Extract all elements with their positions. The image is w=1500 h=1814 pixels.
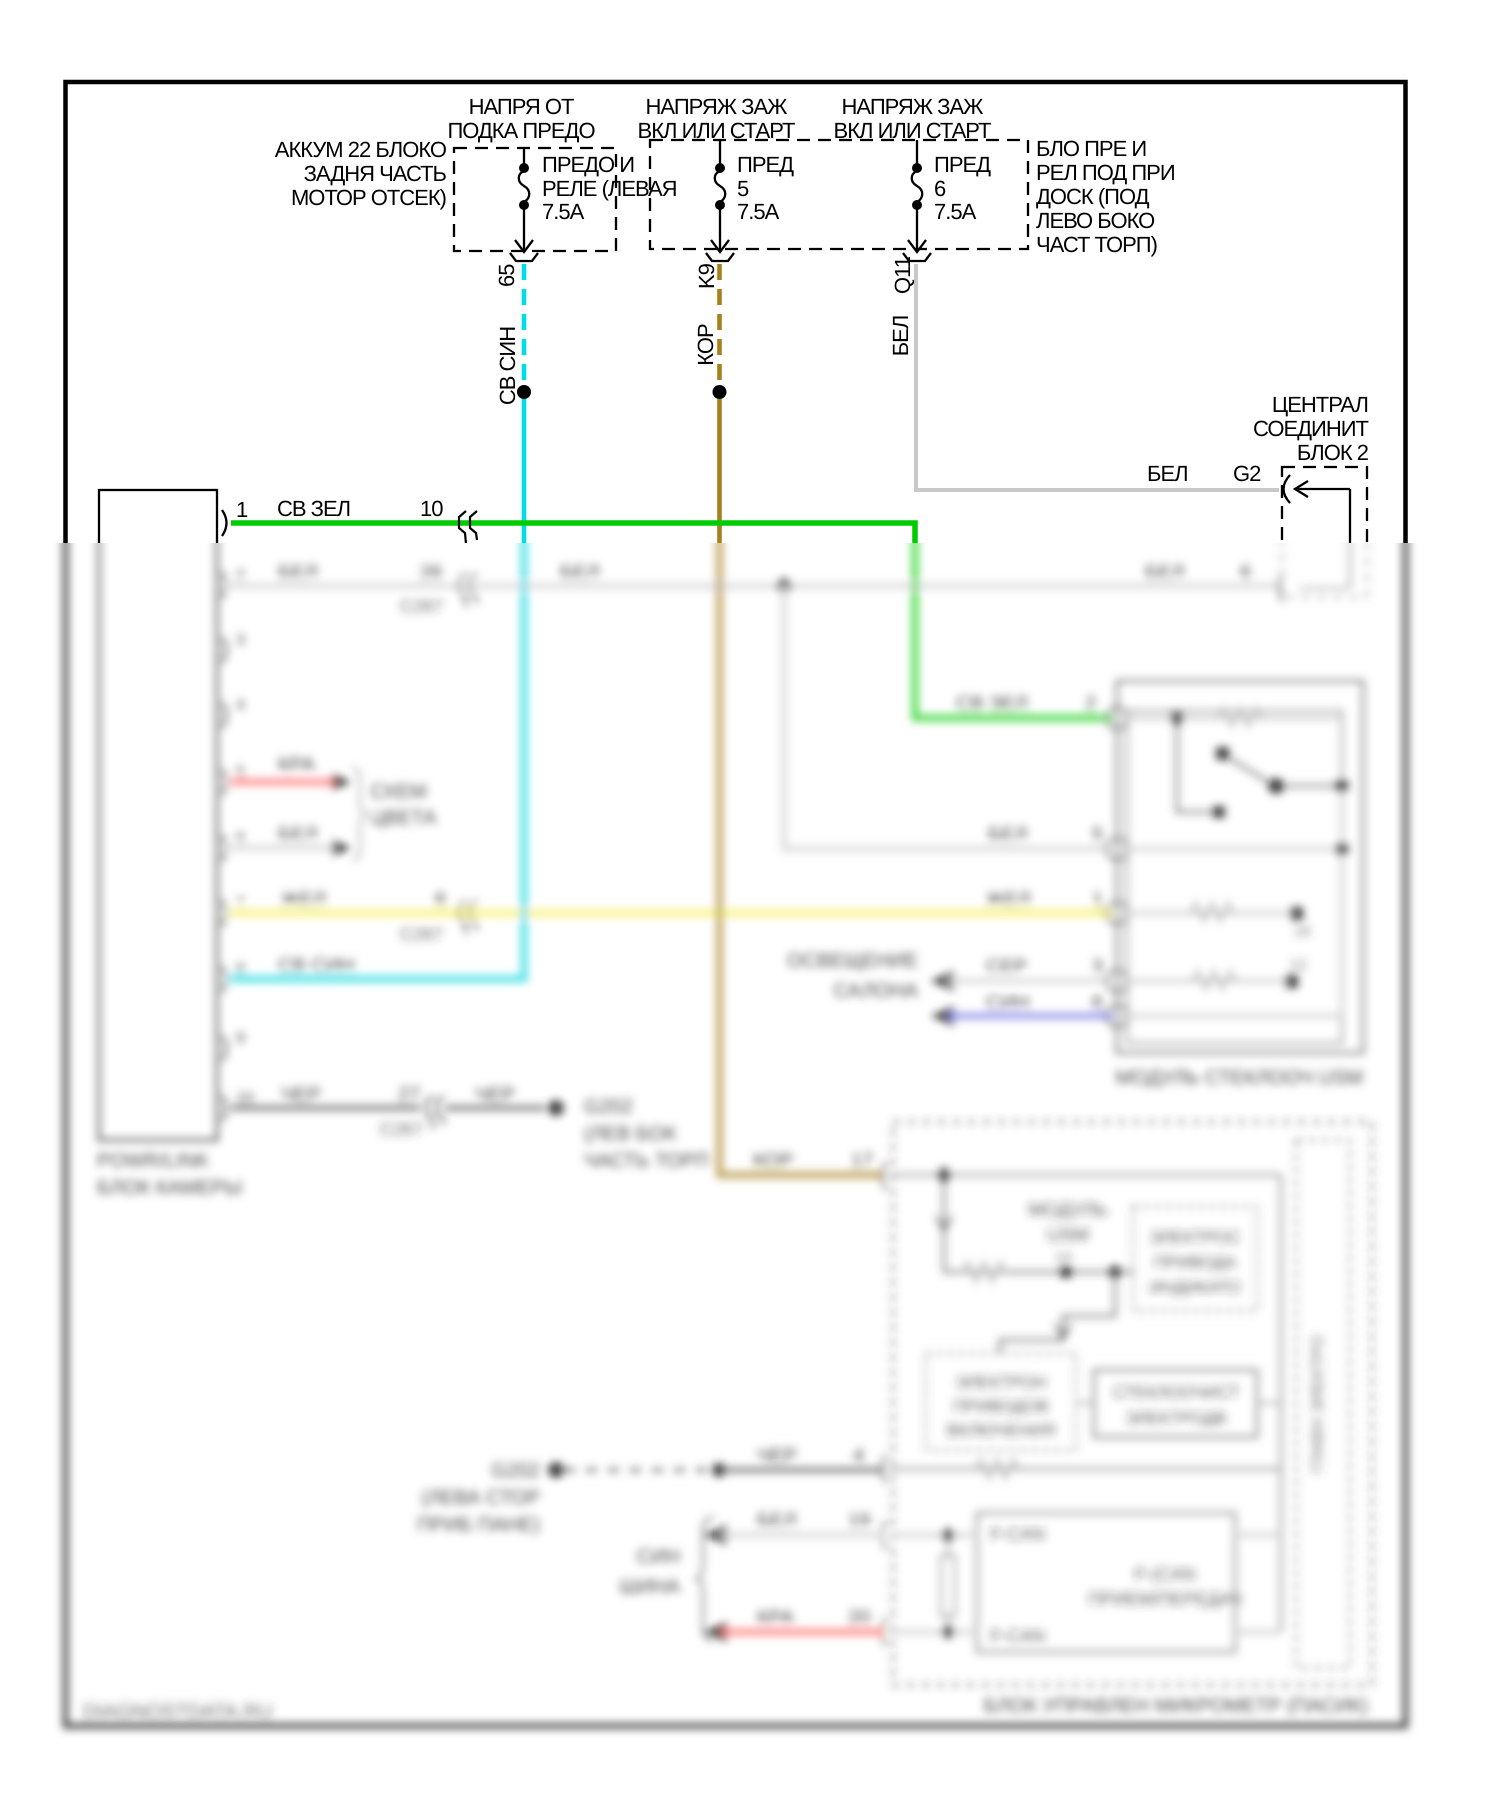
svg-text:СОЕДИНИТ: СОЕДИНИТ xyxy=(1253,416,1369,441)
svg-text:БЛОК 2: БЛОК 2 xyxy=(1297,440,1369,465)
svg-text:ЦЕНТРАЛ: ЦЕНТРАЛ xyxy=(1272,392,1368,417)
svg-text:ЗАДНЯ ЧАСТЬ: ЗАДНЯ ЧАСТЬ xyxy=(304,161,447,186)
svg-text:K9: K9 xyxy=(694,263,719,289)
svg-text:1: 1 xyxy=(236,497,248,522)
svg-text:ЛЕВО БОКО: ЛЕВО БОКО xyxy=(1036,208,1155,233)
svg-text:АККУМ 22 БЛОКО: АККУМ 22 БЛОКО xyxy=(275,137,447,162)
svg-text:10: 10 xyxy=(420,496,443,521)
svg-text:ПРЕДО И: ПРЕДО И xyxy=(542,152,634,177)
svg-text:ПРЕД: ПРЕД xyxy=(934,152,991,177)
svg-text:РЕЛ ПОД ПРИ: РЕЛ ПОД ПРИ xyxy=(1036,160,1175,185)
svg-text:Q11: Q11 xyxy=(890,256,915,294)
svg-text:5: 5 xyxy=(737,176,749,201)
svg-text:ЧАСТ ТОРП): ЧАСТ ТОРП) xyxy=(1036,232,1157,257)
svg-text:7.5А: 7.5А xyxy=(737,199,780,224)
svg-text:НАПРЯЖ ЗАЖ: НАПРЯЖ ЗАЖ xyxy=(842,94,985,119)
svg-text:7.5А: 7.5А xyxy=(542,199,585,224)
svg-text:G2: G2 xyxy=(1233,461,1261,486)
svg-text:6: 6 xyxy=(934,176,946,201)
svg-text:ПРЕД: ПРЕД xyxy=(737,152,794,177)
svg-text:НАПРЯЖ ЗАЖ: НАПРЯЖ ЗАЖ xyxy=(646,94,789,119)
svg-text:БЕЛ: БЕЛ xyxy=(888,316,913,357)
svg-text:БЕЛ: БЕЛ xyxy=(1147,461,1188,486)
svg-text:СВ ЗЕЛ: СВ ЗЕЛ xyxy=(277,496,350,521)
svg-text:ПОДКА ПРЕДО: ПОДКА ПРЕДО xyxy=(447,118,595,143)
svg-text:ДОСК (ПОД: ДОСК (ПОД xyxy=(1036,184,1150,209)
svg-text:КОР: КОР xyxy=(693,324,718,366)
svg-text:МОТОР ОТСЕК): МОТОР ОТСЕК) xyxy=(291,185,446,210)
svg-text:НАПРЯ ОТ: НАПРЯ ОТ xyxy=(469,94,574,119)
svg-text:РЕЛЕ (ЛЕВАЯ: РЕЛЕ (ЛЕВАЯ xyxy=(542,176,677,201)
svg-text:7.5А: 7.5А xyxy=(934,199,977,224)
svg-text:БЛО ПРЕ И: БЛО ПРЕ И xyxy=(1036,136,1146,161)
svg-text:65: 65 xyxy=(494,264,519,287)
svg-text:СВ СИН: СВ СИН xyxy=(495,327,520,405)
